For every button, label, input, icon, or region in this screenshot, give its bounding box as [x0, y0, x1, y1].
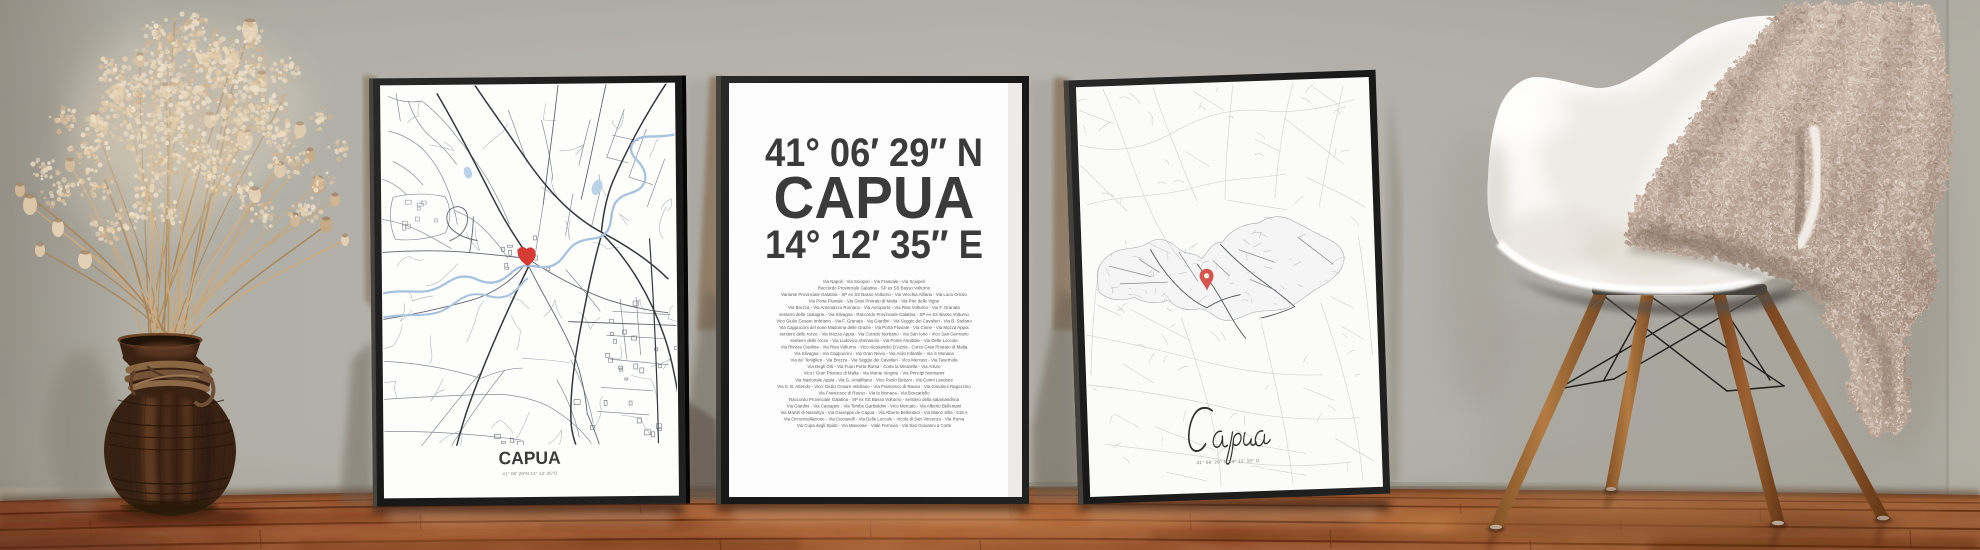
svg-text:Via Cappuccini del none Madonn: Via Cappuccini del none Madonna delle Gr…: [779, 325, 969, 330]
svg-text:CAPUA: CAPUA: [774, 165, 975, 231]
svg-text:Via Martiri di Nassiriya - Via: Via Martiri di Nassiriya - Via Giuseppe …: [780, 410, 967, 415]
svg-text:Via Cupa degli Spiriti - Via M: Via Cupa degli Spiriti - Via Maxonae - V…: [797, 423, 952, 428]
svg-text:sentiero delle rocce - Via Moz: sentiero delle rocce - Via Mozza Appia -…: [779, 331, 969, 336]
svg-text:sentiero delle rocce - Via Lud: sentiero delle rocce - Via Ludovico Aben…: [790, 338, 958, 343]
svg-text:Via S. B. Attendo - Vicci Giul: Via S. B. Attendo - Vicci Giulio Cesare …: [777, 384, 971, 389]
svg-text:Via Degli Orti - Via Fuori Por: Via Degli Orti - Via Fuori Porta Roma - …: [808, 364, 942, 369]
svg-text:Vico Giulio Cesare Imbriano -: Vico Giulio Cesare Imbriano - Via F. Gra…: [776, 318, 972, 323]
svg-text:Via Porta Fluviale - Via Gran: Via Porta Fluviale - Via Gran Priorato d…: [809, 299, 940, 304]
svg-text:Vico I Gran Priorato di Malta: Vico I Gran Priorato di Malta - Via Mont…: [804, 371, 945, 376]
svg-text:Variante Provinciale Galatina: Variante Provinciale Galatina - SP ex SS…: [781, 292, 967, 297]
svg-text:Via de’ Teniglien - Via Brezza: Via de’ Teniglien - Via Brezza - Via Seg…: [791, 358, 958, 363]
svg-text:Via Brezza - Via Antoniazzo Ro: Via Brezza - Via Antoniazzo Romano - Via…: [788, 305, 960, 310]
svg-text:Via Nazionale Appia - Via G. A: Via Nazionale Appia - Via G. Amalfitano …: [795, 377, 953, 382]
svg-text:Raccordo Provinciale Galatina: Raccordo Provinciale Galatina - SP ex SS…: [818, 286, 931, 291]
svg-text:CAPUA: CAPUA: [499, 448, 561, 469]
svg-text:Via Francesco di Rauso - Via l: Via Francesco di Rauso - Via la Monaca -…: [818, 390, 930, 395]
svg-text:Via Riviera Casilina - Via Riv: Via Riviera Casilina - Via Riva Volturno…: [781, 345, 968, 350]
svg-text:14° 12′ 35″ E: 14° 12′ 35″ E: [765, 223, 983, 267]
svg-text:Via Circumvallazione - Via Cic: Via Circumvallazione - Via Cicciarelli -…: [784, 417, 965, 422]
svg-text:sentiero delle castagne - Via: sentiero delle castagne - Via Silvagna -…: [779, 312, 969, 317]
svg-text:41° 06′ 29″N 14° 12′ 35″O: 41° 06′ 29″N 14° 12′ 35″O: [502, 471, 558, 477]
svg-text:Raccordo Provinciale Galatina: Raccordo Provinciale Galatina - SP ex SS…: [789, 397, 960, 402]
svg-text:Via Giardini - Via Castagne -: Via Giardini - Via Castagne - Via Tombe …: [787, 404, 962, 409]
svg-text:Via Napoli - Via Sciopori - Vi: Via Napoli - Via Sciopori - Via Frascale…: [823, 279, 926, 284]
svg-text:Via Silvagna - Via Cappuccini: Via Silvagna - Via Cappuccini - Via Gran…: [794, 351, 954, 356]
